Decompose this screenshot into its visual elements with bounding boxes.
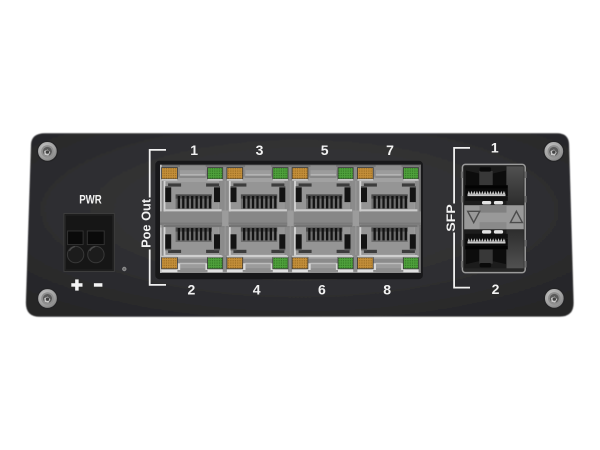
svg-text:2: 2 <box>492 281 500 297</box>
svg-text:8: 8 <box>383 282 391 298</box>
svg-text:1: 1 <box>190 142 198 158</box>
svg-text:SFP: SFP <box>444 204 458 232</box>
svg-text:6: 6 <box>318 282 326 298</box>
svg-text:PWR: PWR <box>79 195 102 207</box>
svg-text:5: 5 <box>321 142 329 158</box>
svg-text:1: 1 <box>491 140 499 156</box>
svg-text:7: 7 <box>386 142 394 158</box>
svg-text:3: 3 <box>256 142 264 158</box>
svg-text:Poe Out: Poe Out <box>140 198 154 248</box>
svg-text:2: 2 <box>188 282 196 298</box>
svg-text:4: 4 <box>253 282 261 298</box>
